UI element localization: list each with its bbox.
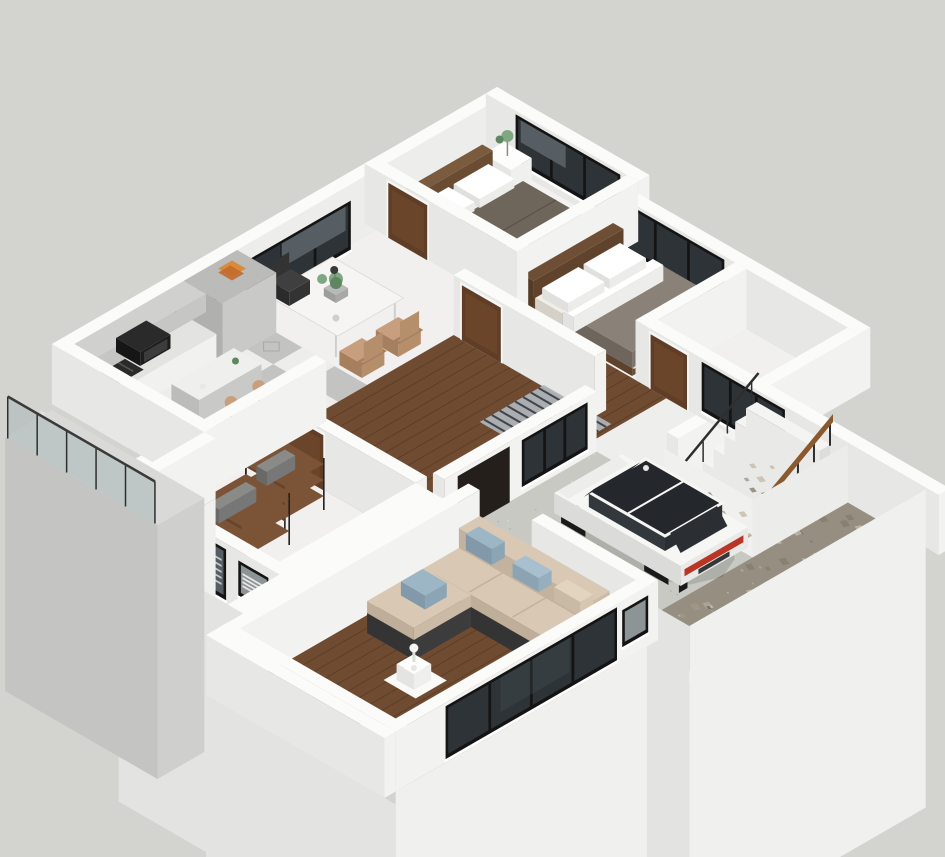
isometric-house-scene: 3D isometric floor plan render xyxy=(0,0,945,857)
floor-plan-render: 3D isometric floor plan render xyxy=(0,0,945,857)
